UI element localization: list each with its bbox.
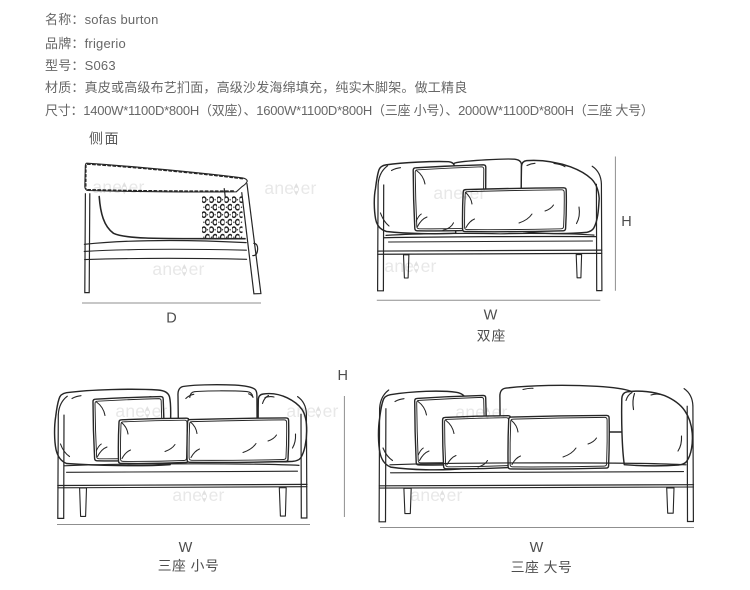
svg-text:er: er	[301, 178, 317, 198]
svg-text:er: er	[421, 256, 437, 276]
svg-text:er: er	[323, 401, 339, 421]
svg-text:ane: ane	[172, 485, 202, 505]
svg-text:ane: ane	[286, 401, 316, 421]
svg-text:侧面: 侧面	[89, 131, 120, 147]
svg-text:er: er	[447, 485, 463, 505]
svg-text:W: W	[179, 540, 193, 556]
svg-text:ane: ane	[92, 177, 122, 197]
svg-text:双座: 双座	[477, 329, 507, 344]
svg-text:W: W	[530, 540, 544, 556]
svg-text:er: er	[129, 177, 145, 197]
svg-text:er: er	[209, 485, 225, 505]
svg-text:ane: ane	[152, 259, 182, 279]
svg-text:H: H	[621, 214, 631, 230]
svg-text:ane: ane	[384, 256, 414, 276]
svg-text:er: er	[152, 401, 168, 421]
svg-text:ane: ane	[264, 178, 294, 198]
svg-text:W: W	[484, 308, 498, 324]
svg-text:er: er	[189, 259, 205, 279]
svg-text:ane: ane	[115, 401, 145, 421]
svg-text:ane: ane	[410, 485, 440, 505]
svg-text:三座 大号: 三座 大号	[511, 560, 573, 575]
svg-text:ane: ane	[455, 402, 485, 422]
svg-text:D: D	[166, 311, 176, 327]
svg-text:三座 小号: 三座 小号	[158, 558, 220, 573]
svg-text:er: er	[470, 183, 486, 203]
svg-text:er: er	[492, 402, 508, 422]
svg-text:H: H	[338, 368, 348, 384]
svg-text:ane: ane	[433, 183, 463, 203]
